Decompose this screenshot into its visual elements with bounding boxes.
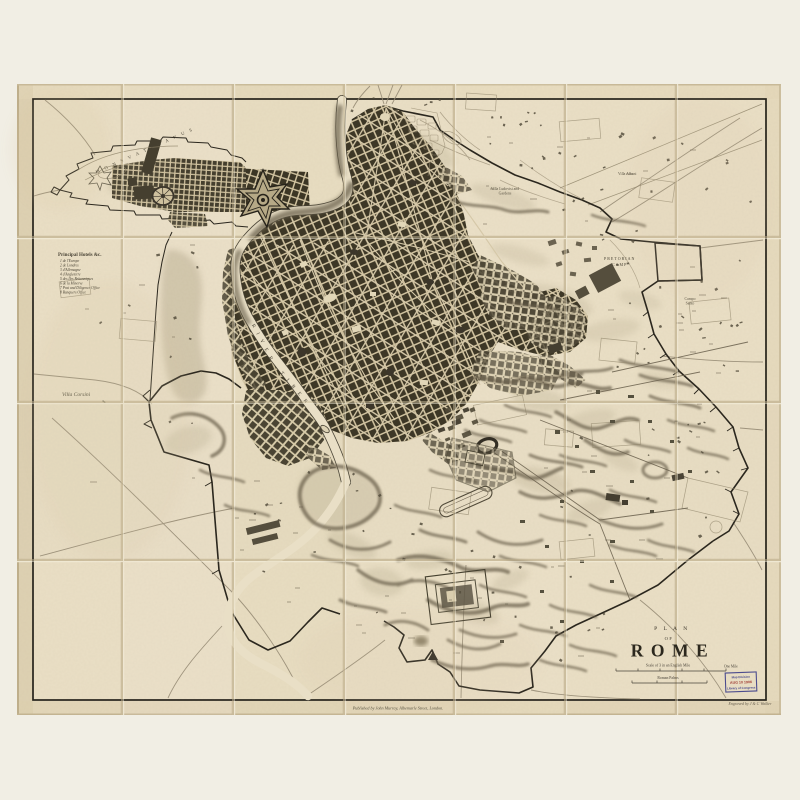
svg-text:Roman Palms: Roman Palms bbox=[657, 676, 679, 680]
svg-text:Map Division: Map Division bbox=[732, 675, 751, 680]
svg-text:One Mile: One Mile bbox=[724, 665, 738, 669]
svg-text:Engraved by J & C Walker: Engraved by J & C Walker bbox=[727, 701, 772, 706]
svg-text:1 de l'Europe: 1 de l'Europe bbox=[60, 259, 80, 263]
svg-text:ROME: ROME bbox=[631, 641, 715, 661]
svg-text:6 de la Minerve: 6 de la Minerve bbox=[60, 282, 83, 286]
svg-text:PRETORIAN: PRETORIAN bbox=[604, 256, 635, 261]
svg-text:Santo: Santo bbox=[686, 302, 695, 306]
svg-text:Villa Ludovisi and: Villa Ludovisi and bbox=[491, 187, 519, 191]
svg-text:Principal Hotels &c.: Principal Hotels &c. bbox=[58, 253, 102, 258]
svg-text:CAMP: CAMP bbox=[612, 262, 627, 267]
svg-text:3 d'Allemagne: 3 d'Allemagne bbox=[60, 268, 81, 272]
svg-text:AUG 10 1906: AUG 10 1906 bbox=[730, 680, 752, 685]
svg-text:5 des Iles Britanniques: 5 des Iles Britanniques bbox=[60, 277, 94, 281]
svg-text:Gardens: Gardens bbox=[499, 192, 512, 196]
svg-text:Scale of 3 in an English Mile: Scale of 3 in an English Mile bbox=[646, 664, 691, 668]
svg-text:4 d'Angleterre: 4 d'Angleterre bbox=[60, 273, 81, 277]
svg-text:2 de Londres: 2 de Londres bbox=[60, 264, 79, 268]
svg-text:P L A N: P L A N bbox=[654, 626, 690, 632]
